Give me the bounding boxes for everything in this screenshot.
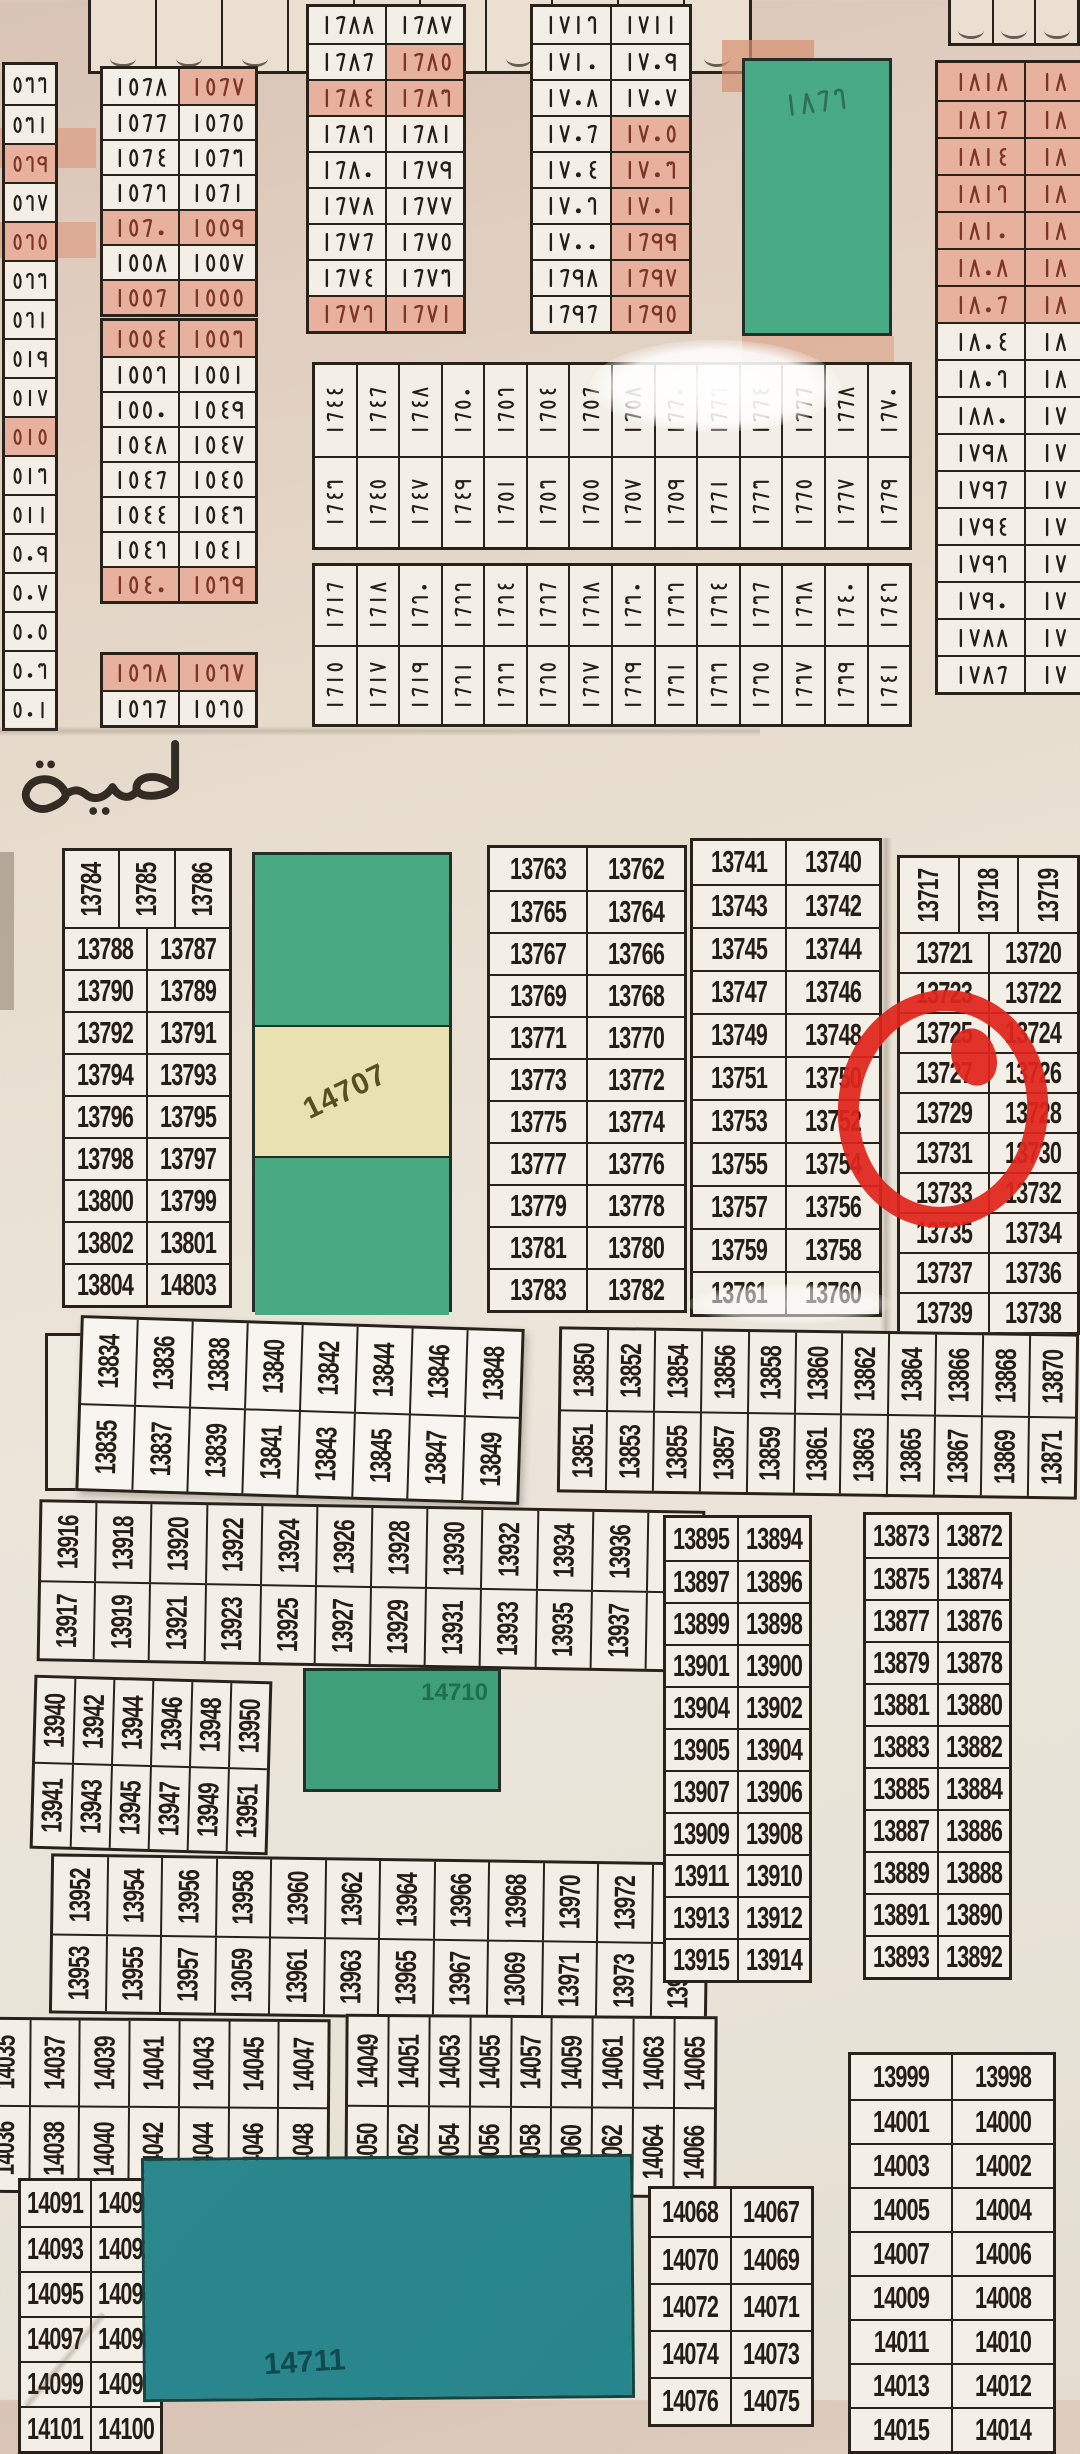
plot-cell bbox=[1024, 361, 1080, 396]
plot-cell: 13790 bbox=[65, 971, 146, 1011]
plot-cell: 14057 bbox=[510, 2018, 552, 2106]
plot-cell: 14070 bbox=[651, 2238, 730, 2283]
plot-cell bbox=[533, 117, 610, 151]
plot-cell: 13766 bbox=[586, 934, 684, 974]
plot-cell bbox=[385, 261, 463, 295]
plot-cell: 14051 bbox=[387, 2017, 429, 2105]
plot-cell bbox=[610, 117, 689, 151]
plot-cell bbox=[610, 45, 689, 79]
plot-cell bbox=[315, 647, 356, 724]
plot-cell: 13834 bbox=[81, 1318, 137, 1405]
plot-cell bbox=[938, 657, 1024, 692]
plot-cell bbox=[938, 213, 1024, 248]
plot-cell: 13877 bbox=[866, 1601, 937, 1641]
plot-cell: 13762 bbox=[586, 848, 684, 890]
plot-cell bbox=[178, 393, 255, 426]
plot-cell: 14091 bbox=[21, 2181, 90, 2226]
plot-band-13850: 1385013852138541385613858138601386213864… bbox=[557, 1326, 1079, 1499]
plot-cell: 14039 bbox=[78, 2020, 128, 2105]
plot-cell bbox=[938, 176, 1024, 211]
plot-cell: 14035 bbox=[0, 2020, 29, 2105]
plot-cell: 13854 bbox=[653, 1331, 701, 1412]
plot-cell bbox=[441, 566, 484, 645]
plot-cell: 13913 bbox=[666, 1898, 737, 1938]
plot-cell bbox=[696, 647, 739, 724]
plot-cell bbox=[441, 458, 484, 547]
plot-block-1554 bbox=[100, 318, 258, 604]
plot-cell: 13946 bbox=[150, 1681, 191, 1766]
plot-cell bbox=[103, 428, 178, 461]
plot-cell: 13941 bbox=[33, 1764, 72, 1847]
plot-cell: 13843 bbox=[296, 1412, 354, 1497]
plot-cell bbox=[309, 81, 385, 115]
plot-cell: 13928 bbox=[370, 1508, 427, 1587]
plot-cell bbox=[356, 458, 399, 547]
teal-parcel-14711: 14711 bbox=[141, 2154, 635, 2402]
paper-shadow-sliver bbox=[0, 852, 14, 1010]
plot-cell: 13953 bbox=[52, 1935, 106, 2011]
plot-cell: 13864 bbox=[887, 1334, 935, 1415]
plot-cell: 14012 bbox=[951, 2365, 1053, 2407]
plot-cell: 13917 bbox=[40, 1582, 94, 1659]
plot-cell: 13848 bbox=[464, 1330, 522, 1417]
plot-cell: 13858 bbox=[747, 1332, 795, 1413]
plot-cell: 13753 bbox=[693, 1101, 785, 1142]
plot-cell bbox=[533, 261, 610, 295]
plot-cell: 13786 bbox=[174, 851, 229, 927]
plot-cell: 13890 bbox=[937, 1895, 1010, 1935]
plot-cell: 14055 bbox=[469, 2018, 511, 2106]
plot-cell: 14002 bbox=[951, 2145, 1053, 2187]
plot-cell: 13971 bbox=[540, 1942, 596, 2018]
plot-cell: 13741 bbox=[693, 841, 785, 884]
plot-cell: 13958 bbox=[215, 1859, 271, 1937]
plot-cell bbox=[739, 458, 782, 547]
plot-cell: 14049 bbox=[348, 2017, 388, 2105]
plot-cell: 13868 bbox=[981, 1335, 1029, 1416]
plot-cell bbox=[5, 145, 55, 182]
plot-cell bbox=[5, 262, 55, 299]
plot-cell bbox=[533, 81, 610, 115]
plot-cell: 14066 bbox=[673, 2109, 714, 2195]
plot-cell: 13797 bbox=[146, 1139, 229, 1179]
plot-cell: 13906 bbox=[737, 1772, 810, 1812]
plot-cell bbox=[315, 458, 356, 547]
cut-off-plot-cell bbox=[221, 0, 287, 71]
camera-glare bbox=[590, 340, 840, 432]
green-parcel-1862 bbox=[742, 58, 892, 336]
plot-cell: 14001 bbox=[851, 2101, 951, 2143]
plot-cell bbox=[938, 250, 1024, 285]
plot-cell bbox=[1024, 509, 1080, 544]
plot-cell: 13747 bbox=[693, 972, 785, 1013]
plot-cell bbox=[568, 458, 611, 547]
plot-cell: 13764 bbox=[586, 892, 684, 932]
plot-block-13999: 1399913998140011400014003140021400514004… bbox=[848, 2052, 1056, 2454]
plot-cell: 13801 bbox=[146, 1223, 229, 1263]
plot-cell bbox=[103, 246, 178, 279]
plot-cell bbox=[610, 261, 689, 295]
plot-cell bbox=[1024, 398, 1080, 433]
plot-column-500s bbox=[2, 62, 58, 731]
plot-cell: 13937 bbox=[589, 1592, 645, 1669]
plot-cell: 13784 bbox=[65, 851, 118, 927]
plot-cell: 13840 bbox=[244, 1323, 302, 1410]
cut-off-plot-cell bbox=[91, 0, 155, 71]
green-parcel-14707: 14707 bbox=[252, 852, 452, 1312]
plot-cell bbox=[5, 184, 55, 221]
plot-cell bbox=[1024, 287, 1080, 322]
plot-cell: 14010 bbox=[951, 2321, 1053, 2363]
plot-cell: 13954 bbox=[106, 1857, 162, 1935]
plot-cell: 13926 bbox=[315, 1507, 372, 1586]
plot-cell: 13956 bbox=[160, 1858, 216, 1936]
plot-cell: 14075 bbox=[730, 2379, 811, 2424]
plot-cell: 14041 bbox=[128, 2021, 178, 2106]
plot-cell: 13999 bbox=[851, 2055, 951, 2099]
plot-cell: 13998 bbox=[951, 2055, 1053, 2099]
plot-cell: 13794 bbox=[65, 1055, 146, 1095]
plot-cell: 13950 bbox=[228, 1683, 269, 1768]
plot-cell: 14100 bbox=[90, 2408, 161, 2451]
plot-cell bbox=[385, 117, 463, 151]
plot-cell: 13765 bbox=[490, 892, 586, 932]
plot-cell: 13717 bbox=[900, 858, 958, 932]
plot-cell bbox=[938, 324, 1024, 359]
plot-cell: 13888 bbox=[937, 1853, 1010, 1893]
plot-cell bbox=[938, 398, 1024, 433]
plot-cell: 13720 bbox=[988, 934, 1078, 972]
plot-cell bbox=[938, 435, 1024, 470]
plot-cell: 13940 bbox=[35, 1678, 74, 1763]
cut-off-plot-cell bbox=[1034, 0, 1077, 43]
plot-cell: 13886 bbox=[937, 1811, 1010, 1851]
plot-cell bbox=[739, 647, 782, 724]
plot-cell bbox=[356, 647, 399, 724]
plot-cell: 13896 bbox=[737, 1562, 810, 1602]
plot-cell: 13771 bbox=[490, 1018, 586, 1058]
plot-cell: 13895 bbox=[666, 1518, 737, 1560]
plot-cell: 13776 bbox=[586, 1144, 684, 1184]
plot-cell: 13944 bbox=[111, 1680, 152, 1765]
plot-cell: 13932 bbox=[480, 1510, 537, 1589]
plot-cell: 13773 bbox=[490, 1060, 586, 1100]
plot-cell: 13902 bbox=[737, 1688, 810, 1728]
plot-cell: 14101 bbox=[21, 2408, 90, 2451]
plot-cell bbox=[654, 647, 697, 724]
plot-cell: 14061 bbox=[591, 2018, 633, 2106]
plot-cell bbox=[5, 652, 55, 689]
plot-cell bbox=[178, 498, 255, 531]
parcel-label-14711: 14711 bbox=[263, 2343, 347, 2382]
plot-cell: 13853 bbox=[605, 1412, 653, 1491]
plot-cell: 13861 bbox=[792, 1415, 840, 1494]
plot-cell: 13908 bbox=[737, 1814, 810, 1854]
plot-cell: 13882 bbox=[937, 1727, 1010, 1767]
plot-cell bbox=[178, 281, 255, 314]
plot-cell: 14076 bbox=[651, 2379, 730, 2424]
plot-cell bbox=[103, 393, 178, 426]
plot-cell bbox=[441, 647, 484, 724]
plot-cell bbox=[1024, 324, 1080, 359]
plot-cell bbox=[1024, 546, 1080, 581]
plot-cell bbox=[696, 566, 739, 645]
plot-cell: 13742 bbox=[785, 886, 879, 927]
plot-cell: 13736 bbox=[988, 1254, 1078, 1292]
plot-cell: 13872 bbox=[937, 1515, 1010, 1557]
plot-cell: 13859 bbox=[746, 1414, 794, 1493]
plot-cell bbox=[610, 189, 689, 223]
plot-cell: 13927 bbox=[314, 1587, 370, 1664]
plot-cell bbox=[309, 7, 385, 43]
plot-band-13952: 1395213954139561395813960139621396413966… bbox=[49, 1853, 709, 2022]
plot-cell bbox=[385, 225, 463, 259]
plot-band-1616 bbox=[312, 563, 912, 727]
plot-cell bbox=[1024, 63, 1080, 100]
plot-cell bbox=[315, 566, 356, 645]
plot-cell: 13968 bbox=[487, 1863, 543, 1941]
plot-cell bbox=[385, 189, 463, 223]
plot-cell: 14037 bbox=[29, 2020, 79, 2105]
plot-cell: 13909 bbox=[666, 1814, 737, 1854]
plot-cell: 13920 bbox=[149, 1504, 206, 1583]
plot-cell: 13963 bbox=[322, 1939, 378, 2015]
parcel-label-14710: 14710 bbox=[421, 1679, 488, 1707]
plot-cell: 13951 bbox=[226, 1769, 267, 1852]
plot-cell: 14007 bbox=[851, 2233, 951, 2275]
plot-cell: 13900 bbox=[737, 1646, 810, 1686]
plot-cell bbox=[103, 463, 178, 496]
plot-cell bbox=[1024, 176, 1080, 211]
parcel-14707-beige-segment: 14707 bbox=[255, 1025, 449, 1158]
plot-cell: 13804 bbox=[65, 1265, 146, 1305]
plot-cell: 13839 bbox=[186, 1409, 244, 1494]
plot-cell bbox=[533, 297, 610, 331]
plot-cell: 13855 bbox=[652, 1413, 700, 1492]
plot-cell: 13069 bbox=[486, 1942, 542, 2018]
plot-cell bbox=[533, 225, 610, 259]
plot-cell: 14004 bbox=[951, 2189, 1053, 2231]
plot-cell: 13763 bbox=[490, 848, 586, 890]
plot-cell bbox=[5, 106, 55, 143]
plot-cell bbox=[103, 321, 178, 356]
plot-cell bbox=[824, 566, 867, 645]
plot-cell: 13802 bbox=[65, 1223, 146, 1263]
plot-cell: 13921 bbox=[148, 1584, 204, 1661]
plot-cell bbox=[568, 647, 611, 724]
plot-cell: 13929 bbox=[369, 1588, 425, 1665]
plot-block-1568 bbox=[100, 66, 258, 317]
plot-cell bbox=[5, 301, 55, 338]
plot-cell: 13967 bbox=[431, 1941, 487, 2017]
plot-block-13784: 1378413785137861378813787137901378913792… bbox=[62, 848, 232, 1308]
parcel-green-segment bbox=[255, 1158, 449, 1315]
plot-cell bbox=[611, 647, 654, 724]
plot-cell: 13970 bbox=[541, 1863, 597, 1941]
plot-cell: 13876 bbox=[937, 1601, 1010, 1641]
plot-block-1712 bbox=[530, 4, 692, 334]
plot-cell bbox=[610, 153, 689, 187]
plot-cell bbox=[1024, 620, 1080, 655]
plot-cell bbox=[781, 458, 824, 547]
plot-cell bbox=[103, 568, 178, 601]
plot-cell bbox=[398, 365, 441, 456]
plot-cell bbox=[441, 365, 484, 456]
plot-block-13763: 1376313762137651376413767137661376913768… bbox=[487, 845, 687, 1313]
plot-cell: 13846 bbox=[409, 1328, 467, 1415]
plot-cell bbox=[5, 613, 55, 650]
plot-cell: 13884 bbox=[937, 1769, 1010, 1809]
plot-cell bbox=[309, 225, 385, 259]
plot-cell: 13945 bbox=[109, 1766, 150, 1849]
plot-cell: 13783 bbox=[490, 1270, 586, 1310]
plot-cell: 13739 bbox=[900, 1294, 988, 1332]
plot-cell: 13948 bbox=[189, 1682, 230, 1767]
cut-off-plot-cell bbox=[155, 0, 221, 71]
plot-cell: 13935 bbox=[534, 1591, 590, 1668]
plot-cell: 13795 bbox=[146, 1097, 229, 1137]
plot-cell bbox=[309, 261, 385, 295]
plot-cell: 13755 bbox=[693, 1144, 785, 1185]
plot-cell bbox=[1024, 657, 1080, 692]
plot-cell bbox=[1024, 139, 1080, 174]
plot-cell bbox=[178, 568, 255, 601]
plot-cell: 13891 bbox=[866, 1895, 937, 1935]
plot-cell: 13919 bbox=[93, 1583, 149, 1660]
plot-cell bbox=[867, 566, 910, 645]
plot-cell: 13759 bbox=[693, 1230, 785, 1271]
plot-cell: 13961 bbox=[268, 1938, 324, 2014]
plot-cell bbox=[356, 365, 399, 456]
plot-cell: 13721 bbox=[900, 934, 988, 972]
plot-cell bbox=[781, 647, 824, 724]
plot-cell: 13857 bbox=[699, 1413, 747, 1492]
plot-cell: 13837 bbox=[131, 1407, 189, 1492]
plot-cell: 13767 bbox=[490, 934, 586, 974]
plot-cell: 13782 bbox=[586, 1270, 684, 1310]
plot-cell: 13842 bbox=[299, 1325, 357, 1412]
plot-cell bbox=[103, 655, 178, 690]
plot-cell: 13871 bbox=[1027, 1418, 1075, 1497]
plot-cell: 14065 bbox=[673, 2019, 715, 2107]
plot-cell: 13845 bbox=[351, 1414, 409, 1499]
plot-cell: 13836 bbox=[134, 1320, 192, 1407]
plot-cell: 14073 bbox=[730, 2332, 811, 2377]
plot-cell: 13758 bbox=[785, 1230, 879, 1271]
plot-cell: 14069 bbox=[730, 2238, 811, 2283]
plot-cell: 13955 bbox=[104, 1936, 160, 2012]
plot-cell bbox=[178, 692, 255, 725]
plot-cell bbox=[1024, 472, 1080, 507]
plot-cell: 13922 bbox=[205, 1505, 262, 1584]
plot-cell: 13719 bbox=[1017, 858, 1077, 932]
plot-cell bbox=[385, 153, 463, 187]
plot-cell bbox=[385, 45, 463, 79]
plot-cell: 14064 bbox=[632, 2109, 673, 2195]
plot-cell: 13768 bbox=[586, 976, 684, 1016]
plot-cell: 13894 bbox=[737, 1518, 810, 1560]
plot-cell bbox=[103, 69, 178, 104]
plot-cell: 13889 bbox=[866, 1853, 937, 1893]
plot-block-13873: 1387313872138751387413877138761387913878… bbox=[863, 1512, 1012, 1980]
plot-cell: 13787 bbox=[146, 929, 229, 969]
plot-cell: 13838 bbox=[189, 1322, 247, 1409]
plot-block-14068: 1406814067140701406914072140711407414073… bbox=[648, 2186, 814, 2427]
plot-cell: 13757 bbox=[693, 1187, 785, 1228]
plot-cell bbox=[309, 297, 385, 331]
plot-cell: 13745 bbox=[693, 929, 785, 970]
plot-cell: 13897 bbox=[666, 1562, 737, 1602]
plot-cell: 13907 bbox=[666, 1772, 737, 1812]
plot-cell bbox=[533, 189, 610, 223]
plot-cell: 13883 bbox=[866, 1727, 937, 1767]
plot-cell bbox=[1024, 435, 1080, 470]
plot-cell bbox=[483, 566, 526, 645]
plot-map-photo: { "canvas":{"width":1080,"height":2400},… bbox=[0, 0, 1080, 2400]
plot-cell: 13737 bbox=[900, 1254, 988, 1292]
plot-block-1528 bbox=[100, 652, 258, 728]
plot-cell: 14015 bbox=[851, 2409, 951, 2451]
plot-cell bbox=[1024, 250, 1080, 285]
plot-cell bbox=[103, 211, 178, 244]
plot-cell: 14000 bbox=[951, 2101, 1053, 2143]
cut-off-plot-cell bbox=[992, 0, 1035, 43]
plot-cell: 14067 bbox=[730, 2189, 811, 2236]
road-label bbox=[4, 728, 204, 818]
plot-cell bbox=[398, 458, 441, 547]
plot-cell bbox=[938, 546, 1024, 581]
plot-cell bbox=[398, 566, 441, 645]
plot-cell: 13934 bbox=[536, 1511, 593, 1590]
plot-cell: 13924 bbox=[260, 1506, 317, 1585]
plot-cell bbox=[533, 45, 610, 79]
plot-cell bbox=[385, 297, 463, 331]
plot-cell: 13793 bbox=[146, 1055, 229, 1095]
plot-cell bbox=[5, 691, 55, 728]
camera-glare bbox=[688, 1284, 892, 1324]
plot-cell: 13916 bbox=[41, 1502, 96, 1581]
plot-block-1818 bbox=[935, 60, 1080, 695]
plot-cell bbox=[5, 496, 55, 533]
plot-cell: 13863 bbox=[839, 1415, 887, 1494]
plot-cell: 13873 bbox=[866, 1515, 937, 1557]
plot-cell bbox=[178, 141, 255, 174]
plot-cell: 13796 bbox=[65, 1097, 146, 1137]
plot-cell: 13734 bbox=[988, 1214, 1078, 1252]
plot-cell: 13738 bbox=[988, 1294, 1078, 1332]
plot-cell: 13887 bbox=[866, 1811, 937, 1851]
plot-cell: 13770 bbox=[586, 1018, 684, 1058]
plot-cell bbox=[610, 81, 689, 115]
plot-cell: 13933 bbox=[479, 1590, 535, 1667]
plot-cell: 13911 bbox=[666, 1856, 737, 1896]
parcel-label-1862 bbox=[782, 85, 850, 119]
plot-cell bbox=[5, 340, 55, 377]
plot-cell bbox=[533, 153, 610, 187]
plot-cell: 13844 bbox=[354, 1327, 412, 1414]
plot-cell bbox=[938, 472, 1024, 507]
plot-cell bbox=[398, 647, 441, 724]
plot-cell bbox=[867, 647, 910, 724]
plot-cell: 13875 bbox=[866, 1559, 937, 1599]
plot-cell bbox=[610, 7, 689, 43]
plot-cell: 14043 bbox=[178, 2021, 228, 2106]
plot-cell: 13942 bbox=[72, 1679, 113, 1764]
plot-cell: 14003 bbox=[851, 2145, 951, 2187]
plot-cell bbox=[178, 246, 255, 279]
plot-cell bbox=[654, 566, 697, 645]
plot-cell bbox=[526, 647, 569, 724]
